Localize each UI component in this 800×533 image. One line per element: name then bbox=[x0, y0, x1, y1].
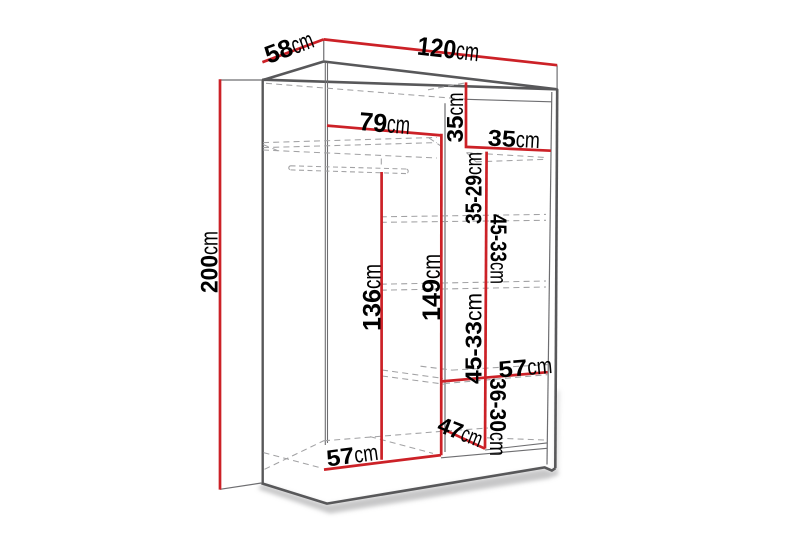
svg-text:cm: cm bbox=[386, 108, 411, 140]
svg-text:35: 35 bbox=[442, 115, 468, 142]
svg-text:cm: cm bbox=[455, 35, 481, 67]
svg-text:cm: cm bbox=[485, 432, 511, 456]
svg-text:cm: cm bbox=[515, 126, 540, 153]
svg-text:200: 200 bbox=[197, 255, 224, 293]
svg-text:cm: cm bbox=[418, 254, 446, 279]
svg-text:120: 120 bbox=[416, 31, 458, 65]
svg-text:57: 57 bbox=[325, 442, 356, 471]
svg-text:cm: cm bbox=[461, 152, 487, 175]
svg-text:136: 136 bbox=[359, 289, 387, 331]
svg-text:36-30: 36-30 bbox=[485, 378, 511, 432]
svg-text:35: 35 bbox=[487, 125, 517, 152]
svg-text:cm: cm bbox=[526, 352, 553, 380]
svg-text:cm: cm bbox=[442, 93, 468, 116]
svg-text:cm: cm bbox=[486, 262, 512, 284]
svg-text:cm: cm bbox=[461, 293, 487, 321]
svg-text:35-29: 35-29 bbox=[461, 175, 487, 224]
svg-text:149: 149 bbox=[418, 279, 446, 321]
svg-text:cm: cm bbox=[197, 231, 224, 255]
svg-text:cm: cm bbox=[359, 264, 387, 289]
svg-text:79: 79 bbox=[358, 106, 388, 138]
svg-text:45-33: 45-33 bbox=[486, 214, 512, 262]
svg-text:45-33: 45-33 bbox=[461, 321, 487, 384]
svg-text:cm: cm bbox=[353, 439, 380, 468]
